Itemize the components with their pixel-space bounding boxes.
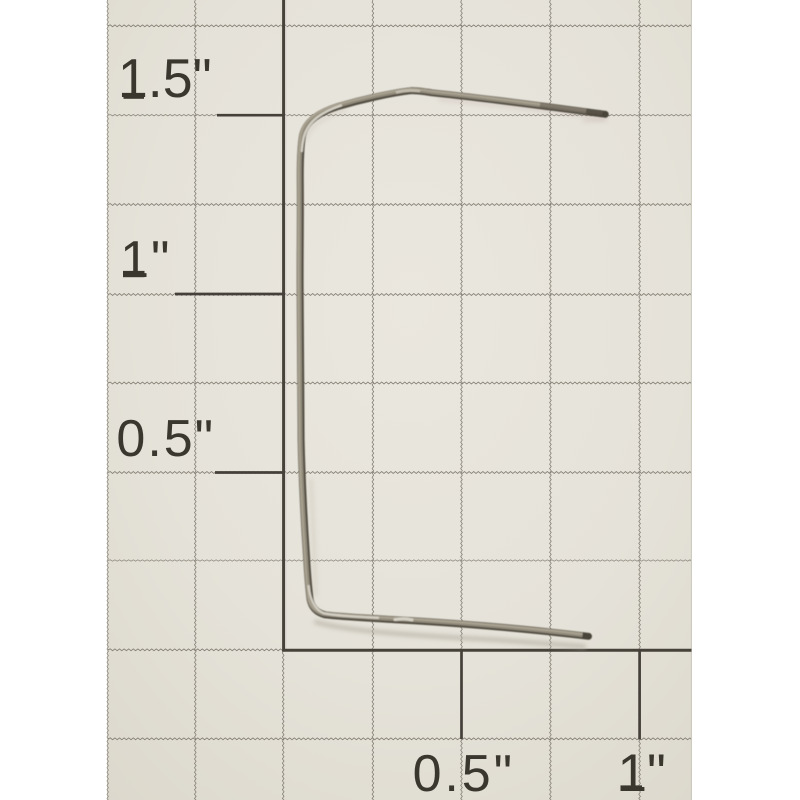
- svg-text:1": 1": [618, 744, 666, 800]
- svg-text:1": 1": [120, 231, 171, 289]
- svg-text:0.5": 0.5": [413, 745, 515, 800]
- svg-text:1.5": 1.5": [118, 47, 212, 109]
- svg-text:0.5": 0.5": [116, 410, 215, 468]
